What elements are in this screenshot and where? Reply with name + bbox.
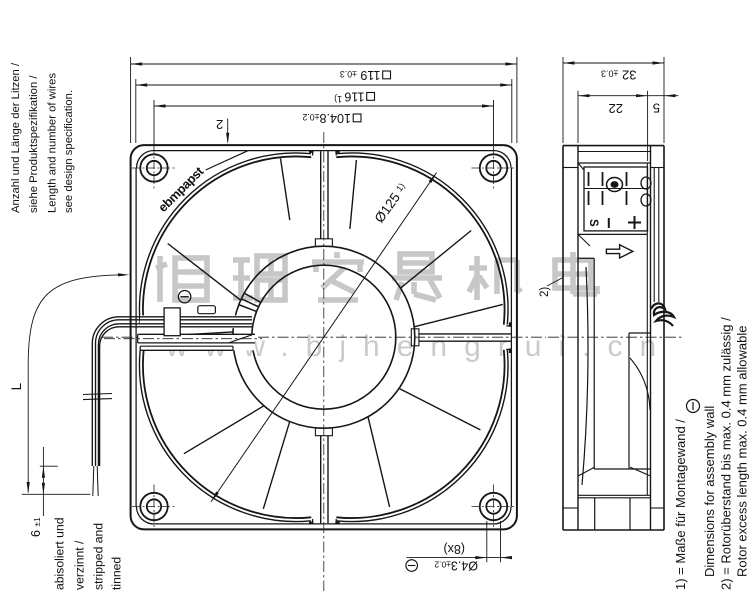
svg-text:32 ±0.3: 32 ±0.3 [601, 68, 637, 83]
svg-text:L: L [9, 382, 24, 390]
svg-text:Rotor excess length max. 0.4 m: Rotor excess length max. 0.4 mm allowabl… [735, 326, 750, 577]
svg-text:Length and number of wires: Length and number of wires [47, 73, 59, 213]
svg-text:2: 2 [216, 117, 223, 132]
svg-text:2) = Rotorüberstand bis max. 0: 2) = Rotorüberstand bis max. 0.4 mm zulä… [719, 317, 734, 590]
svg-text:siehe Produktspezifikation /: siehe Produktspezifikation / [28, 75, 40, 213]
svg-text:Anzahl und Länge der Litzen /: Anzahl und Länge der Litzen / [10, 62, 22, 213]
svg-text:see design specification.: see design specification. [63, 90, 75, 213]
svg-text:22: 22 [609, 101, 623, 116]
svg-text:1) = Maße für Montagewand /: 1) = Maße für Montagewand / [673, 419, 688, 590]
svg-text:6 ±1: 6 ±1 [29, 517, 43, 537]
svg-text:stripped and: stripped and [91, 523, 105, 590]
svg-text:S: S [587, 219, 599, 227]
svg-text:5: 5 [653, 101, 660, 116]
svg-text:verzinnt /: verzinnt / [73, 540, 87, 590]
svg-text:116 1): 116 1) [334, 90, 364, 105]
svg-text:104.8±0.2: 104.8±0.2 [302, 111, 351, 125]
svg-text:(8x): (8x) [443, 542, 465, 556]
svg-text:Dimensions for assembly wall: Dimensions for assembly wall [702, 406, 717, 577]
svg-text:Ø4.3±0.2: Ø4.3±0.2 [434, 559, 478, 573]
svg-text:2): 2) [539, 287, 551, 297]
svg-text:tinned: tinned [109, 557, 123, 590]
svg-text:abisoliert und: abisoliert und [53, 518, 67, 591]
svg-text:119 ±0.3: 119 ±0.3 [340, 68, 381, 82]
